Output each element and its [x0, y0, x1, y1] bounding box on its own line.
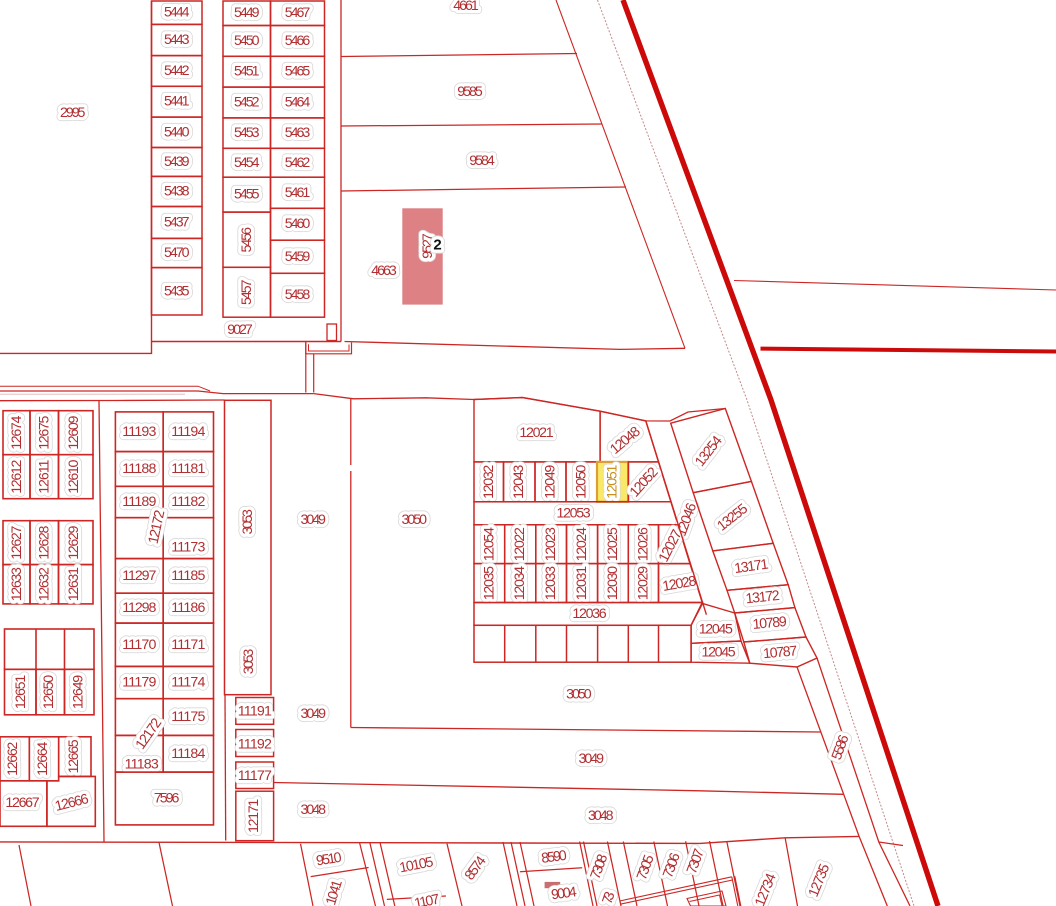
svg-text:12030: 12030 [605, 566, 621, 600]
svg-text:12632: 12632 [37, 567, 53, 601]
svg-text:5467: 5467 [285, 5, 311, 21]
svg-text:5463: 5463 [285, 125, 311, 141]
svg-text:12036: 12036 [572, 606, 606, 622]
svg-text:12025: 12025 [605, 527, 621, 561]
svg-text:5464: 5464 [285, 95, 311, 111]
svg-text:12628: 12628 [37, 525, 53, 559]
svg-text:5438: 5438 [164, 183, 190, 199]
svg-text:11193: 11193 [122, 424, 156, 440]
svg-text:5455: 5455 [234, 187, 260, 203]
svg-text:12021: 12021 [519, 425, 553, 441]
svg-text:11170: 11170 [122, 637, 156, 653]
svg-text:11171: 11171 [171, 637, 205, 653]
svg-text:5462: 5462 [285, 155, 311, 171]
svg-text:9585: 9585 [457, 84, 483, 100]
svg-text:12609: 12609 [66, 415, 82, 449]
svg-text:11188: 11188 [122, 461, 156, 477]
svg-text:5458: 5458 [285, 287, 311, 303]
svg-text:5457: 5457 [239, 279, 255, 305]
svg-text:12050: 12050 [574, 465, 590, 499]
svg-text:5461: 5461 [285, 185, 311, 201]
svg-text:12033: 12033 [543, 566, 559, 600]
svg-text:4663: 4663 [371, 263, 397, 279]
svg-text:12667: 12667 [5, 795, 39, 811]
svg-text:3049: 3049 [300, 512, 326, 528]
svg-text:5466: 5466 [285, 33, 311, 49]
svg-text:11173: 11173 [171, 540, 205, 556]
svg-text:10789: 10789 [752, 614, 788, 633]
svg-text:11184: 11184 [171, 746, 205, 762]
svg-text:12664: 12664 [35, 742, 51, 776]
svg-text:11186: 11186 [171, 600, 205, 616]
svg-text:3048: 3048 [588, 808, 614, 824]
svg-text:12627: 12627 [9, 525, 25, 559]
svg-text:12049: 12049 [543, 465, 559, 499]
svg-text:12629: 12629 [66, 525, 82, 559]
svg-text:11192: 11192 [238, 736, 272, 752]
svg-text:5452: 5452 [234, 95, 260, 111]
svg-text:12045: 12045 [702, 644, 736, 660]
svg-text:2: 2 [433, 237, 441, 254]
svg-text:7596: 7596 [154, 791, 180, 807]
svg-text:11175: 11175 [171, 709, 205, 725]
svg-text:11177: 11177 [238, 768, 272, 784]
svg-text:3053: 3053 [241, 649, 257, 675]
svg-text:5440: 5440 [164, 124, 190, 140]
svg-text:12031: 12031 [574, 566, 590, 600]
svg-text:11179: 11179 [122, 675, 156, 691]
svg-text:12043: 12043 [511, 465, 527, 499]
svg-text:3050: 3050 [402, 512, 428, 528]
svg-text:5453: 5453 [234, 125, 260, 141]
svg-text:11189: 11189 [122, 494, 156, 510]
svg-text:12649: 12649 [71, 675, 87, 709]
svg-text:3053: 3053 [240, 509, 256, 535]
svg-text:12611: 12611 [37, 459, 53, 493]
svg-text:12674: 12674 [9, 415, 25, 449]
svg-text:5456: 5456 [239, 227, 255, 253]
svg-text:12045: 12045 [699, 622, 733, 638]
svg-text:12650: 12650 [41, 675, 57, 709]
svg-text:4661: 4661 [453, 0, 479, 14]
svg-text:11191: 11191 [238, 704, 272, 720]
svg-text:5443: 5443 [164, 32, 190, 48]
svg-text:3048: 3048 [301, 802, 327, 818]
svg-text:5437: 5437 [164, 214, 190, 230]
svg-text:5451: 5451 [234, 64, 260, 80]
svg-text:11174: 11174 [171, 675, 205, 691]
svg-text:5454: 5454 [234, 155, 260, 171]
svg-text:5470: 5470 [164, 245, 190, 261]
svg-text:12665: 12665 [66, 739, 82, 773]
svg-text:12026: 12026 [635, 527, 651, 561]
svg-text:5459: 5459 [285, 249, 311, 265]
svg-text:12610: 12610 [66, 459, 82, 493]
svg-text:3049: 3049 [579, 751, 605, 767]
svg-text:5449: 5449 [234, 5, 260, 21]
svg-text:12024: 12024 [574, 527, 590, 561]
svg-text:12171: 12171 [246, 799, 262, 833]
svg-text:5444: 5444 [164, 5, 190, 21]
svg-text:12662: 12662 [5, 742, 21, 776]
svg-text:5439: 5439 [164, 154, 190, 170]
svg-text:12633: 12633 [9, 567, 25, 601]
svg-text:12022: 12022 [512, 527, 528, 561]
svg-text:5465: 5465 [285, 64, 311, 80]
svg-text:5442: 5442 [164, 63, 190, 79]
svg-text:5441: 5441 [164, 94, 190, 110]
svg-text:9584: 9584 [469, 153, 495, 169]
svg-text:11194: 11194 [171, 424, 205, 440]
svg-text:12051: 12051 [605, 465, 621, 499]
svg-text:12651: 12651 [13, 675, 29, 709]
svg-text:9004: 9004 [550, 884, 577, 903]
svg-text:10787: 10787 [762, 643, 798, 662]
svg-text:12675: 12675 [37, 415, 53, 449]
svg-text:5450: 5450 [234, 33, 260, 49]
svg-text:12034: 12034 [512, 566, 528, 600]
svg-text:11298: 11298 [122, 600, 156, 616]
svg-text:3050: 3050 [566, 686, 592, 702]
svg-text:12612: 12612 [9, 459, 25, 493]
svg-text:11182: 11182 [171, 494, 205, 510]
svg-text:12054: 12054 [481, 527, 497, 561]
svg-text:11181: 11181 [171, 461, 205, 477]
svg-text:3049: 3049 [301, 706, 327, 722]
svg-text:12035: 12035 [481, 566, 497, 600]
svg-text:12053: 12053 [557, 506, 591, 522]
svg-text:2995: 2995 [60, 105, 86, 121]
svg-text:11185: 11185 [171, 568, 205, 584]
svg-text:9027: 9027 [227, 322, 253, 338]
svg-text:11297: 11297 [122, 568, 156, 584]
svg-text:8590: 8590 [540, 848, 567, 867]
svg-text:12631: 12631 [66, 567, 82, 601]
svg-text:5460: 5460 [285, 216, 311, 232]
svg-text:12029: 12029 [635, 566, 651, 600]
svg-text:11183: 11183 [125, 757, 159, 773]
svg-text:12023: 12023 [543, 527, 559, 561]
svg-text:5435: 5435 [164, 283, 190, 299]
svg-text:12032: 12032 [481, 465, 497, 499]
